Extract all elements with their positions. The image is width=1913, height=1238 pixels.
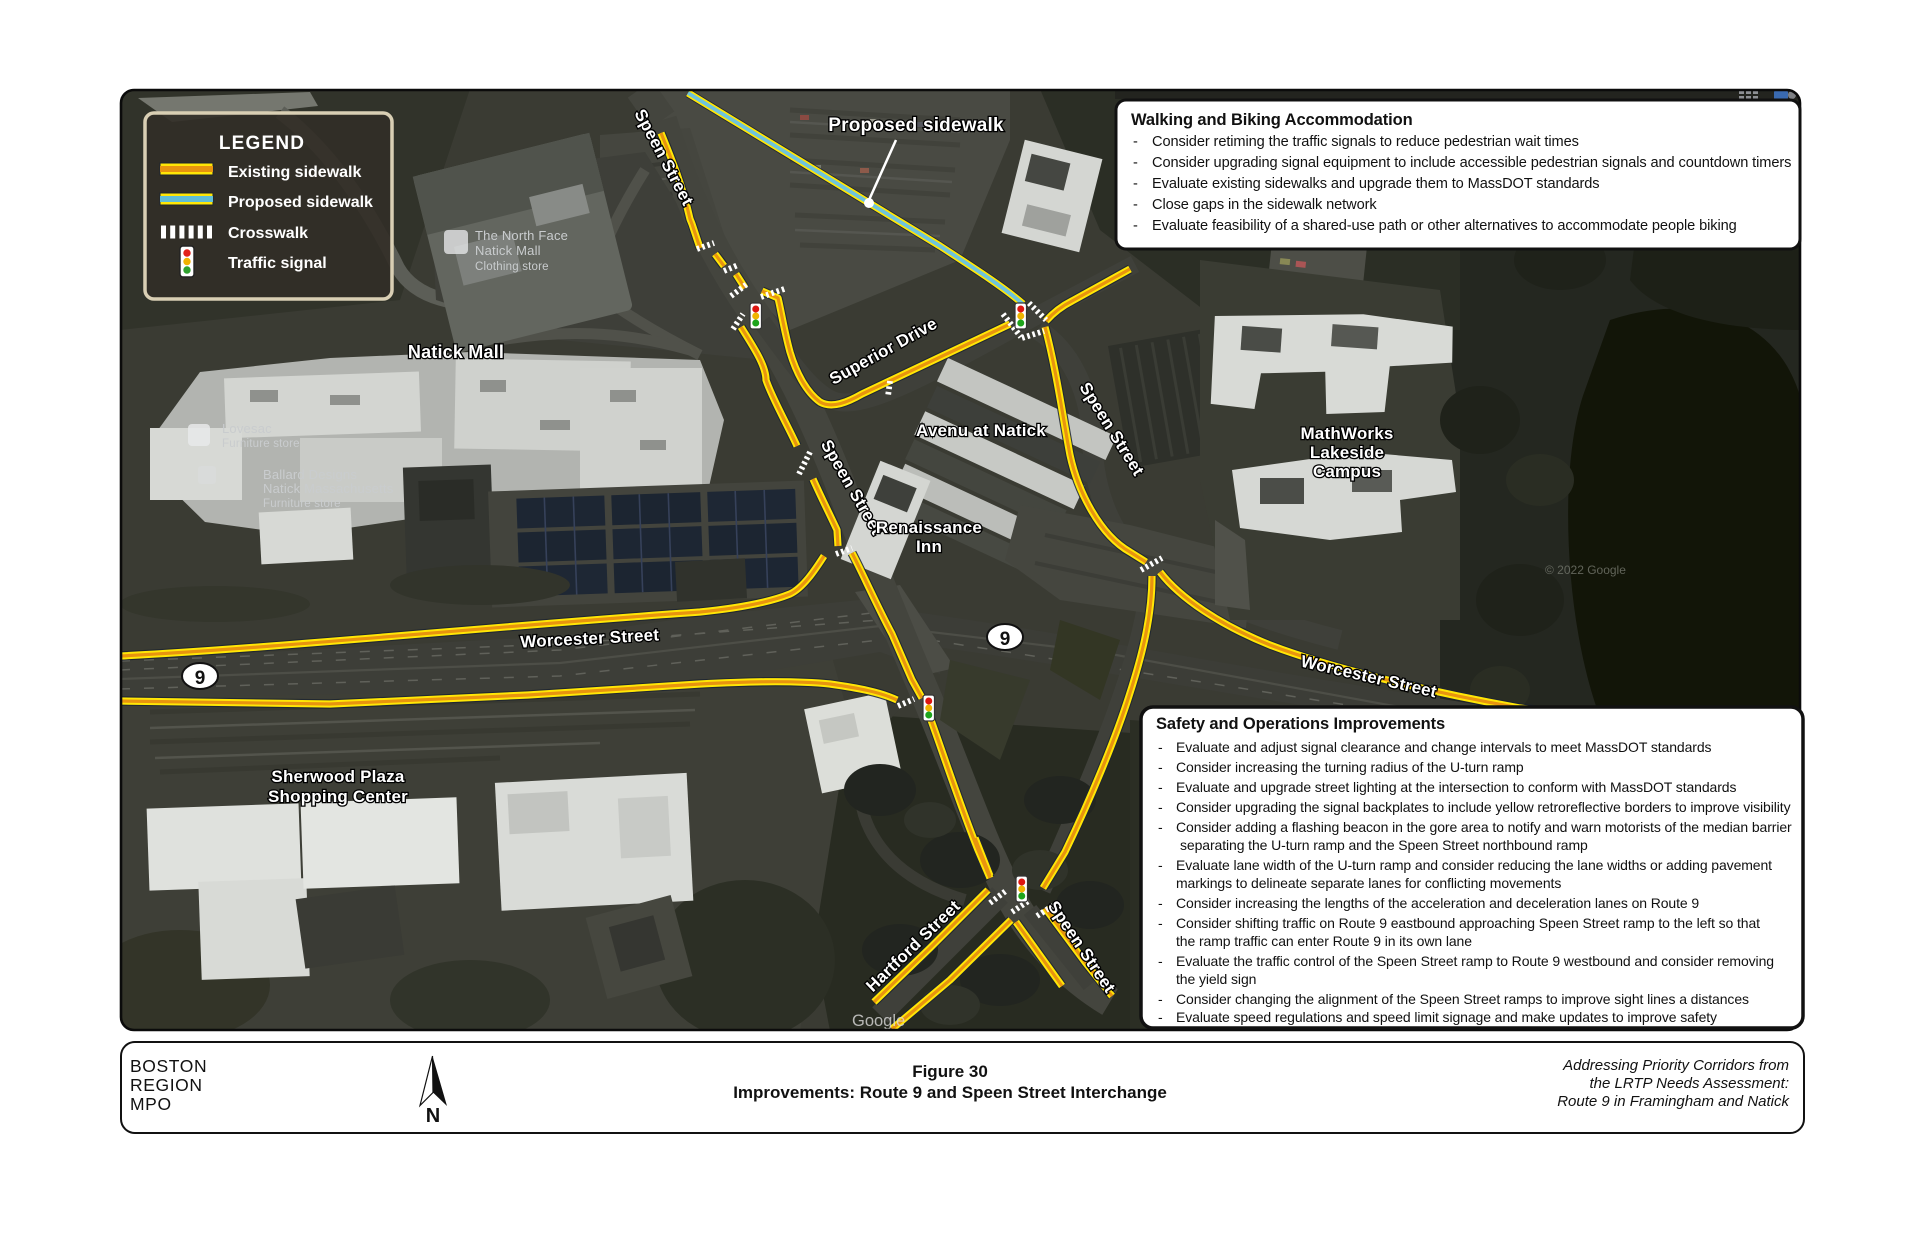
svg-text:-: - <box>1158 779 1163 795</box>
svg-text:Evaluate speed regulations and: Evaluate speed regulations and speed lim… <box>1176 1009 1717 1025</box>
svg-text:Consider adding a flashing bea: Consider adding a flashing beacon in the… <box>1176 819 1792 835</box>
svg-text:Shopping Center: Shopping Center <box>268 787 408 806</box>
svg-text:Evaluate lane width of the U-t: Evaluate lane width of the U-turn ramp a… <box>1176 857 1772 873</box>
svg-text:Lakeside: Lakeside <box>1310 443 1384 462</box>
svg-text:9: 9 <box>195 668 206 689</box>
svg-text:Figure 30: Figure 30 <box>912 1062 988 1081</box>
svg-text:-: - <box>1158 857 1163 873</box>
svg-text:-: - <box>1158 895 1163 911</box>
svg-text:Addressing Priority Corridors: Addressing Priority Corridors from <box>1562 1057 1789 1074</box>
svg-text:N: N <box>426 1105 440 1127</box>
svg-text:MathWorks: MathWorks <box>1300 424 1393 443</box>
svg-text:-: - <box>1133 134 1138 150</box>
svg-text:the yield sign: the yield sign <box>1176 971 1256 987</box>
svg-text:markings to delineate separate: markings to delineate separate lanes for… <box>1176 875 1561 891</box>
svg-text:MPO: MPO <box>130 1094 172 1114</box>
svg-text:-: - <box>1158 991 1163 1007</box>
svg-text:REGION: REGION <box>130 1075 203 1095</box>
svg-text:Consider shifting traffic on R: Consider shifting traffic on Route 9 eas… <box>1176 915 1760 931</box>
svg-text:-: - <box>1158 953 1163 969</box>
svg-text:-: - <box>1158 1009 1163 1025</box>
svg-text:Evaluate existing sidewalks an: Evaluate existing sidewalks and upgrade … <box>1152 176 1600 192</box>
svg-text:Consider upgrading the signal: Consider upgrading the signal backplates… <box>1176 799 1791 815</box>
svg-text:Consider retiming the traffic: Consider retiming the traffic signals to… <box>1152 134 1579 150</box>
svg-text:-: - <box>1158 915 1163 931</box>
svg-text:Consider upgrading signal equi: Consider upgrading signal equipment to i… <box>1152 155 1791 171</box>
svg-text:Proposed sidewalk: Proposed sidewalk <box>228 194 373 211</box>
svg-text:Natick Massachusetts: Natick Massachusetts <box>263 481 394 496</box>
svg-text:-: - <box>1158 739 1163 755</box>
svg-text:Google: Google <box>852 1012 905 1030</box>
svg-text:Campus: Campus <box>1313 462 1381 481</box>
svg-text:separating the U-turn ramp and: separating the U-turn ramp and the Speen… <box>1180 837 1588 853</box>
svg-text:Renaissance: Renaissance <box>876 518 982 537</box>
svg-text:Inn: Inn <box>916 537 942 556</box>
svg-text:The North Face: The North Face <box>475 228 568 243</box>
svg-text:LEGEND: LEGEND <box>219 133 305 154</box>
svg-text:Consider increasing the length: Consider increasing the lengths of the a… <box>1176 895 1699 911</box>
svg-text:the LRTP Needs Assessment:: the LRTP Needs Assessment: <box>1589 1075 1789 1092</box>
svg-text:-: - <box>1133 197 1138 213</box>
svg-text:Sherwood Plaza: Sherwood Plaza <box>271 767 405 786</box>
svg-text:Existing sidewalk: Existing sidewalk <box>228 164 361 181</box>
svg-text:Improvements: Route 9 and Spee: Improvements: Route 9 and Speen Street I… <box>733 1083 1167 1102</box>
svg-text:Furniture store: Furniture store <box>222 438 300 450</box>
svg-text:-: - <box>1158 799 1163 815</box>
svg-text:9: 9 <box>1000 629 1011 650</box>
svg-text:Crosswalk: Crosswalk <box>228 225 308 242</box>
svg-text:-: - <box>1133 176 1138 192</box>
svg-text:Clothing store: Clothing store <box>475 261 549 273</box>
svg-text:Evaluate feasibility of a shar: Evaluate feasibility of a shared-use pat… <box>1152 218 1737 234</box>
svg-text:BOSTON: BOSTON <box>130 1056 207 1076</box>
svg-text:Ballard Designs: Ballard Designs <box>263 467 357 482</box>
svg-text:Close gaps in the sidewalk net: Close gaps in the sidewalk network <box>1152 197 1377 213</box>
svg-text:Avenu at Natick: Avenu at Natick <box>916 421 1046 440</box>
svg-text:Evaluate and upgrade street li: Evaluate and upgrade street lighting at … <box>1176 779 1736 795</box>
svg-text:© 2022 Google: © 2022 Google <box>1545 563 1626 577</box>
svg-text:Consider changing the alignmen: Consider changing the alignment of the S… <box>1176 991 1749 1007</box>
svg-text:Consider increasing the turnin: Consider increasing the turning radius o… <box>1176 759 1524 775</box>
svg-text:-: - <box>1158 819 1163 835</box>
svg-text:Natick Mall: Natick Mall <box>408 342 504 362</box>
svg-text:the ramp traffic can enter Rou: the ramp traffic can enter Route 9 in it… <box>1176 933 1472 949</box>
svg-text:-: - <box>1133 155 1138 171</box>
svg-text:Walking and Biking Accommodati: Walking and Biking Accommodation <box>1131 111 1413 129</box>
svg-text:Evaluate the traffic control o: Evaluate the traffic control of the Spee… <box>1176 953 1774 969</box>
svg-text:-: - <box>1158 759 1163 775</box>
svg-text:Proposed sidewalk: Proposed sidewalk <box>828 115 1004 136</box>
svg-text:Safety and Operations Improvem: Safety and Operations Improvements <box>1156 715 1445 733</box>
svg-text:Evaluate and adjust signal cle: Evaluate and adjust signal clearance and… <box>1176 739 1712 755</box>
svg-text:Natick Mall: Natick Mall <box>475 243 541 258</box>
svg-text:Route 9 in Framingham and Nati: Route 9 in Framingham and Natick <box>1557 1093 1790 1110</box>
svg-text:Furniture store: Furniture store <box>263 498 341 510</box>
svg-text:Lovesac: Lovesac <box>222 421 272 436</box>
svg-text:Traffic signal: Traffic signal <box>228 255 327 272</box>
svg-text:-: - <box>1133 218 1138 234</box>
